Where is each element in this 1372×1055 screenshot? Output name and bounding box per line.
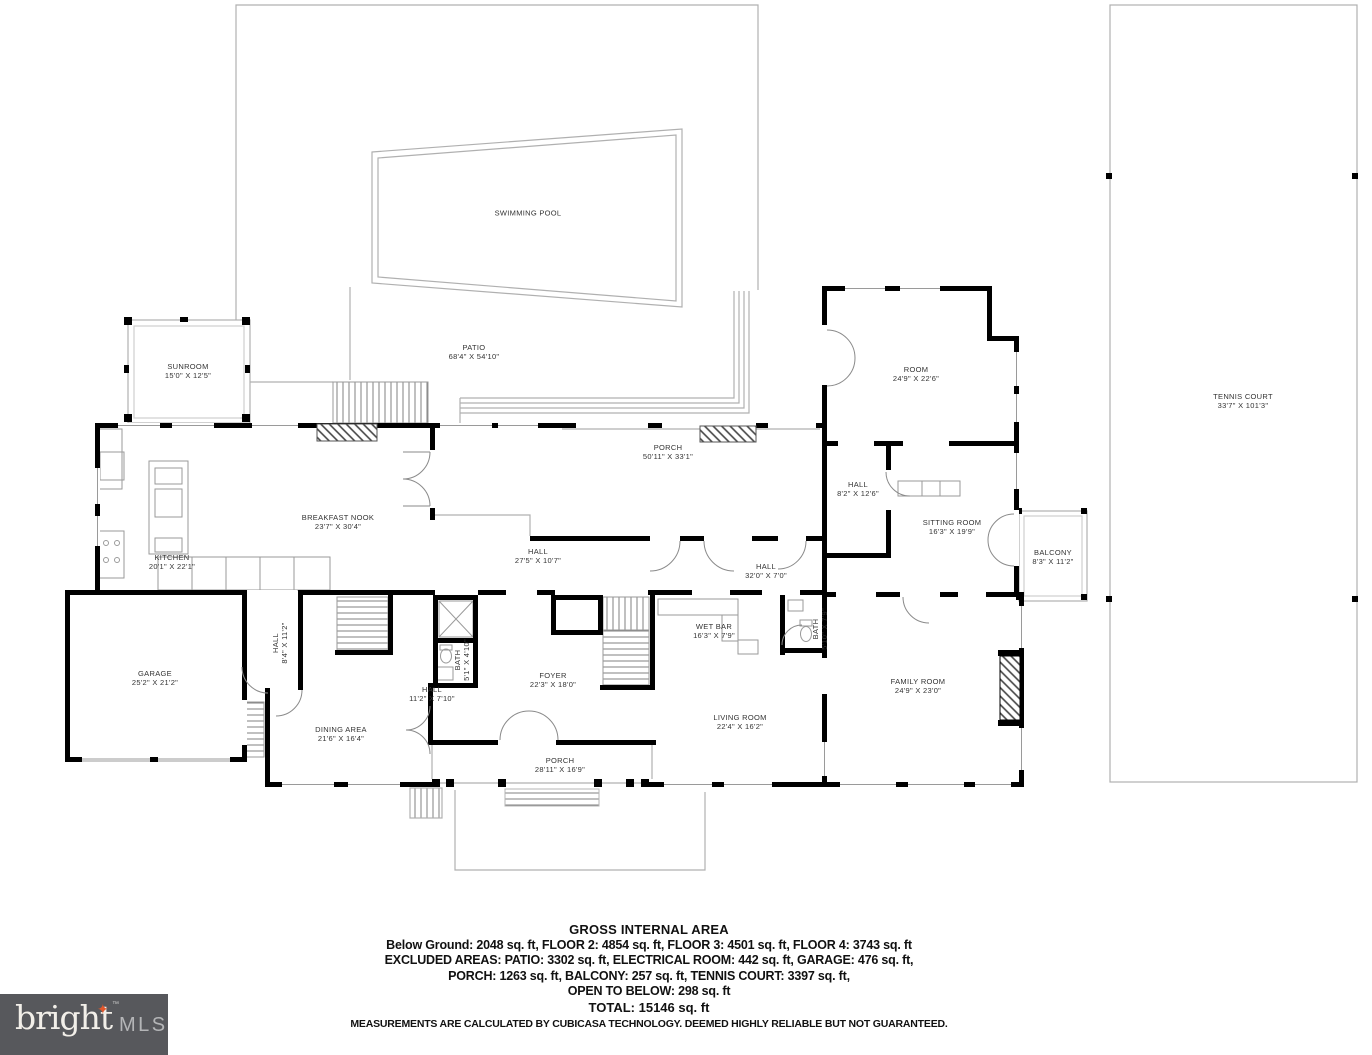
summary-title: GROSS INTERNAL AREA [0, 922, 1335, 938]
walls [65, 173, 1358, 787]
floor-plan-drawing [0, 0, 1372, 1055]
logo-suffix-text: MLS [119, 1014, 168, 1037]
logo-tm-mark: ™ [112, 1001, 119, 1008]
summary-total: TOTAL: 15146 sq. ft [0, 1000, 1335, 1016]
summary-excluded-1: EXCLUDED AREAS: PATIO: 3302 sq. ft, ELEC… [0, 953, 1335, 969]
summary-open-below: OPEN TO BELOW: 298 sq. ft [0, 984, 1335, 1000]
logo-star-icon: ✦ [97, 1001, 109, 1018]
summary-excluded-2: PORCH: 1263 sq. ft, BALCONY: 257 sq. ft,… [0, 969, 1335, 985]
area-summary: GROSS INTERNAL AREA Below Ground: 2048 s… [0, 922, 1335, 1032]
hatched-stairs [317, 424, 1020, 720]
floor-plan-page: SWIMMING POOLPATIO68'4" X 54'10"SUNROOM1… [0, 0, 1372, 1055]
summary-floors: Below Ground: 2048 sq. ft, FLOOR 2: 4854… [0, 938, 1335, 954]
brightmls-logo: bright ✦ ™ MLS [0, 994, 168, 1055]
disclaimer: MEASUREMENTS ARE CALCULATED BY CUBICASA … [0, 1017, 1335, 1032]
